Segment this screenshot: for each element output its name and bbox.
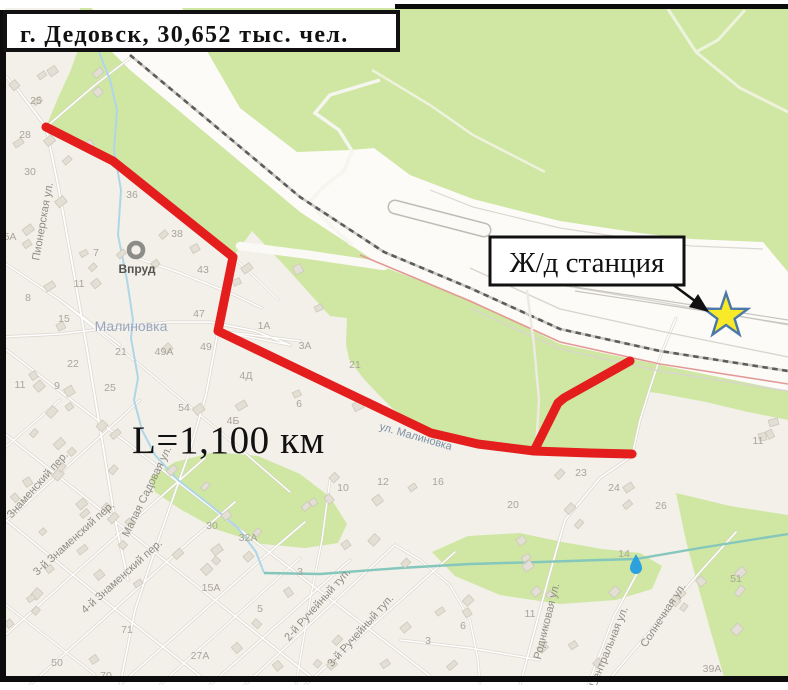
svg-text:25: 25 (30, 95, 42, 107)
svg-text:8: 8 (25, 292, 31, 304)
svg-text:12: 12 (377, 476, 389, 488)
svg-text:36: 36 (126, 189, 138, 201)
svg-text:27А: 27А (191, 650, 210, 662)
svg-text:3: 3 (425, 635, 431, 647)
svg-text:Впруд: Впруд (118, 262, 155, 276)
svg-text:11: 11 (753, 435, 764, 447)
svg-text:47: 47 (193, 308, 205, 320)
svg-text:20: 20 (507, 499, 519, 511)
svg-text:Малиновка: Малиновка (95, 318, 168, 334)
svg-text:39А: 39А (703, 663, 722, 675)
svg-text:15: 15 (58, 313, 70, 325)
svg-text:4Д: 4Д (240, 370, 253, 382)
svg-text:7: 7 (93, 247, 99, 259)
svg-text:11: 11 (74, 278, 85, 290)
svg-text:L=1,100 км: L=1,100 км (132, 419, 325, 462)
svg-text:21: 21 (349, 359, 361, 371)
svg-text:54: 54 (178, 402, 190, 414)
svg-text:3: 3 (297, 566, 303, 578)
svg-text:49А: 49А (155, 346, 174, 358)
svg-text:32А: 32А (239, 532, 258, 544)
svg-text:11: 11 (525, 608, 536, 620)
svg-text:16: 16 (432, 476, 444, 488)
svg-text:43: 43 (197, 264, 209, 276)
svg-text:22: 22 (67, 358, 79, 370)
svg-text:23: 23 (575, 467, 587, 479)
svg-text:21: 21 (115, 346, 127, 358)
svg-text:10: 10 (337, 482, 349, 494)
svg-text:30: 30 (24, 166, 36, 178)
svg-text:6: 6 (296, 398, 302, 410)
svg-text:28: 28 (19, 129, 31, 141)
svg-text:Ж/д станция: Ж/д станция (510, 247, 665, 279)
svg-text:50: 50 (51, 657, 63, 669)
svg-text:г. Дедовск, 30,652 тыс. чел.: г. Дедовск, 30,652 тыс. чел. (20, 22, 349, 48)
svg-text:51: 51 (730, 573, 742, 585)
svg-text:26: 26 (655, 500, 667, 512)
svg-text:24: 24 (608, 482, 620, 494)
svg-text:1А: 1А (258, 320, 271, 332)
svg-text:11: 11 (15, 379, 26, 391)
svg-text:49: 49 (200, 341, 212, 353)
svg-text:38: 38 (171, 228, 183, 240)
svg-text:71: 71 (121, 624, 133, 636)
svg-text:15А: 15А (202, 582, 221, 594)
svg-text:9: 9 (54, 380, 60, 392)
svg-text:14: 14 (618, 548, 630, 560)
svg-text:3А: 3А (299, 340, 312, 352)
svg-text:5: 5 (257, 603, 263, 615)
svg-text:30: 30 (206, 520, 218, 532)
svg-text:25: 25 (104, 382, 116, 394)
svg-text:6: 6 (460, 620, 466, 632)
